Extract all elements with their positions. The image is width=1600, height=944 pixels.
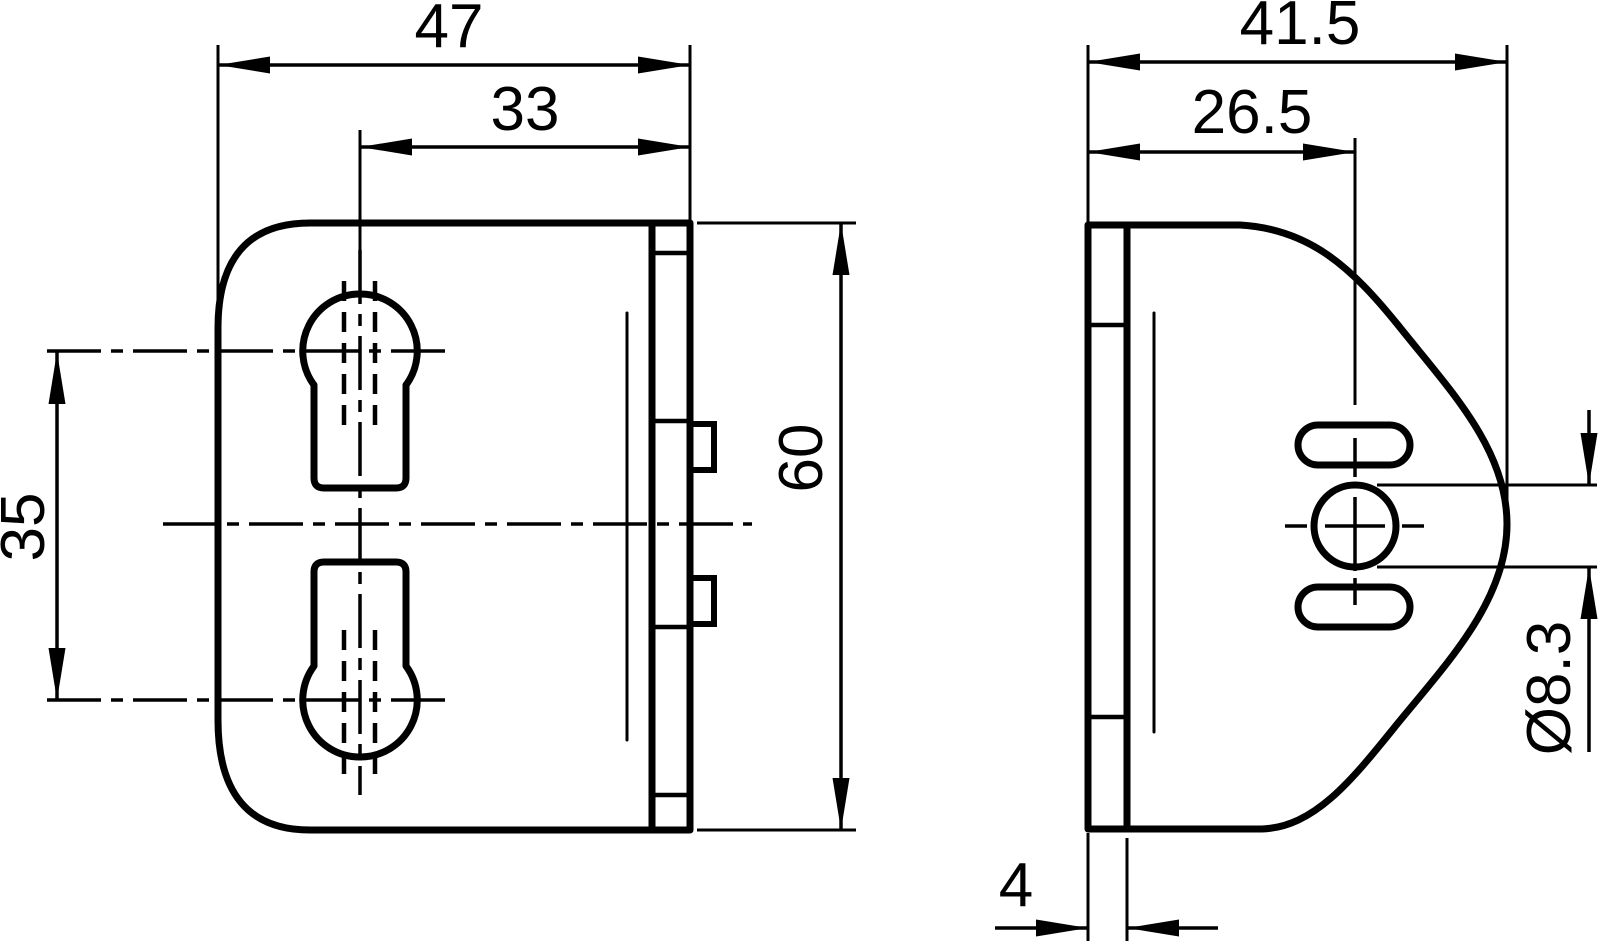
drawing-canvas: 47 33 35 60 <box>0 0 1600 944</box>
dim-hole-diameter-text: Ø8.3 <box>1515 621 1584 755</box>
dim-front-height-text: 60 <box>767 424 836 493</box>
dim-front-width-text: 47 <box>415 0 484 61</box>
dim-slot-spacing-text: 35 <box>0 493 58 562</box>
dim-thickness-text: 4 <box>999 851 1033 920</box>
technical-drawing: 47 33 35 60 <box>0 0 1600 944</box>
dim-slot-offset-text: 33 <box>491 75 560 144</box>
dim-side-width-text: 41.5 <box>1240 0 1361 58</box>
dim-hole-offset-text: 26.5 <box>1192 78 1313 147</box>
